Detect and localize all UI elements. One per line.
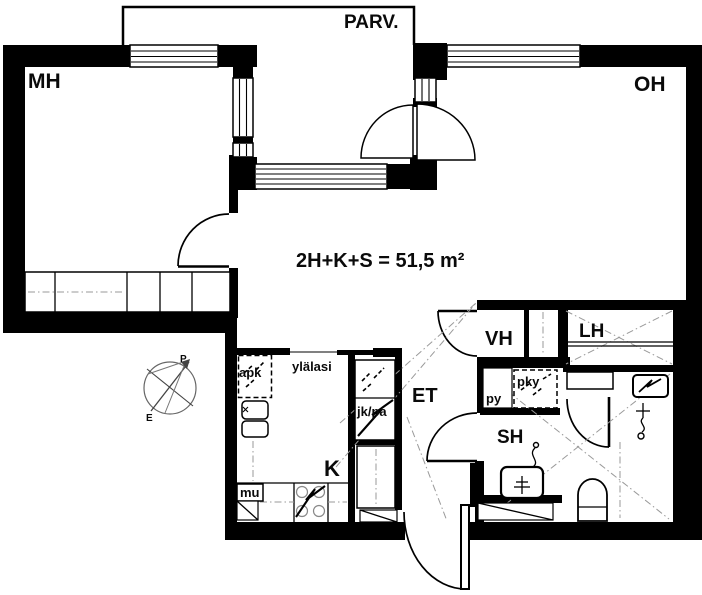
room-label-living-room: OH bbox=[634, 73, 666, 96]
window-living-room bbox=[447, 45, 580, 67]
floor-drain bbox=[636, 403, 650, 439]
compass-north-label: P bbox=[180, 354, 187, 365]
fridge-freezer-unit bbox=[355, 360, 395, 440]
window-bedroom-balcony bbox=[233, 78, 253, 137]
area-label: 2H+K+S = 51,5 m² bbox=[296, 250, 465, 272]
floor-plan-svg: P E PARV. MH OH 2H+K+S = 51,5 m² VH LH E… bbox=[0, 0, 702, 595]
sauna-step bbox=[567, 372, 613, 389]
door-walk-in-closet bbox=[438, 311, 477, 356]
hall-closet bbox=[357, 446, 397, 522]
room-label-balcony: PARV. bbox=[344, 12, 399, 33]
room-label-sauna: LH bbox=[579, 321, 604, 342]
window-bedroom bbox=[130, 45, 218, 67]
room-label-hallway: ET bbox=[412, 385, 438, 407]
door-balcony bbox=[361, 104, 475, 160]
sauna-fixtures bbox=[563, 342, 673, 439]
water-pipe bbox=[532, 443, 538, 468]
compass: P E bbox=[144, 354, 196, 424]
floor-plan-page: P E PARV. MH OH 2H+K+S = 51,5 m² VH LH E… bbox=[0, 0, 702, 595]
window-bedroom-balcony-small bbox=[233, 143, 253, 157]
door-entrance bbox=[404, 505, 469, 589]
room-label-bathroom: SH bbox=[497, 427, 523, 448]
wardrobe-row-bedroom bbox=[25, 272, 230, 312]
window-balcony-band bbox=[255, 164, 387, 189]
label-drying-cabinet: pky bbox=[517, 374, 540, 389]
room-label-bedroom: MH bbox=[28, 70, 61, 93]
room-label-walk-in-closet: VH bbox=[485, 328, 513, 350]
compass-south-label: E bbox=[146, 413, 153, 424]
label-dishwasher: apk bbox=[239, 365, 262, 380]
door-bathroom bbox=[427, 413, 477, 461]
toilet bbox=[578, 479, 607, 521]
sink-bowl bbox=[242, 421, 268, 437]
stove bbox=[296, 486, 325, 517]
label-masonry: mu bbox=[240, 485, 260, 500]
window-balcony-side bbox=[415, 78, 436, 102]
label-upper-glass: ylälasi bbox=[292, 359, 332, 374]
label-washing-machine: py bbox=[486, 391, 502, 406]
room-label-kitchen: K bbox=[324, 456, 340, 481]
label-fridge-freezer: jk/pa bbox=[356, 404, 387, 419]
washbasin bbox=[501, 467, 543, 498]
bathroom-fixtures bbox=[478, 443, 607, 522]
door-bedroom bbox=[178, 214, 229, 267]
